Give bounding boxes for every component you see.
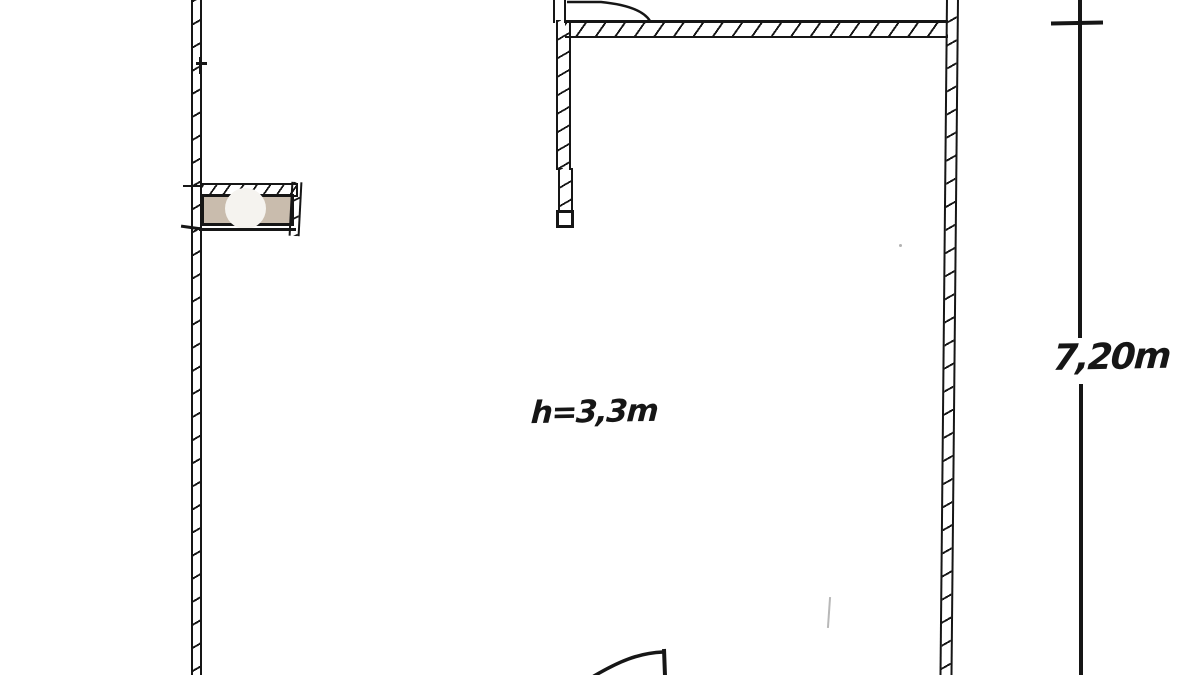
bottom-door-swing-arc (594, 652, 663, 675)
fixture-sill-line (199, 228, 296, 231)
fixture-top-tick (183, 185, 201, 187)
faint-dot-mark (899, 244, 902, 247)
round-column (225, 188, 266, 229)
door-arcs-overlay (0, 0, 1200, 675)
top-exterior-wall (565, 20, 948, 38)
wall-ink-blot (199, 57, 202, 74)
stray-pencil-mark (827, 597, 831, 628)
interior-wall-lower-segment (558, 168, 573, 214)
bottom-door-leaf (664, 649, 665, 675)
ceiling-height-label: h=3,3m (530, 393, 658, 431)
dimension-tick (1051, 21, 1103, 26)
interior-wall-main-segment (556, 20, 571, 170)
wall-ink-blot-tick (196, 62, 207, 65)
left-exterior-wall (191, 0, 202, 675)
top-door-swing-arc (567, 2, 650, 21)
interior-wall-end-cap (556, 210, 574, 228)
dimension-line-upper (1078, 0, 1082, 338)
dimension-label: 7,20m (1052, 336, 1150, 379)
right-exterior-wall (939, 0, 959, 675)
dimension-line-lower (1079, 384, 1083, 675)
floor-plan-canvas: 7,20m h=3,3m (0, 0, 1200, 675)
